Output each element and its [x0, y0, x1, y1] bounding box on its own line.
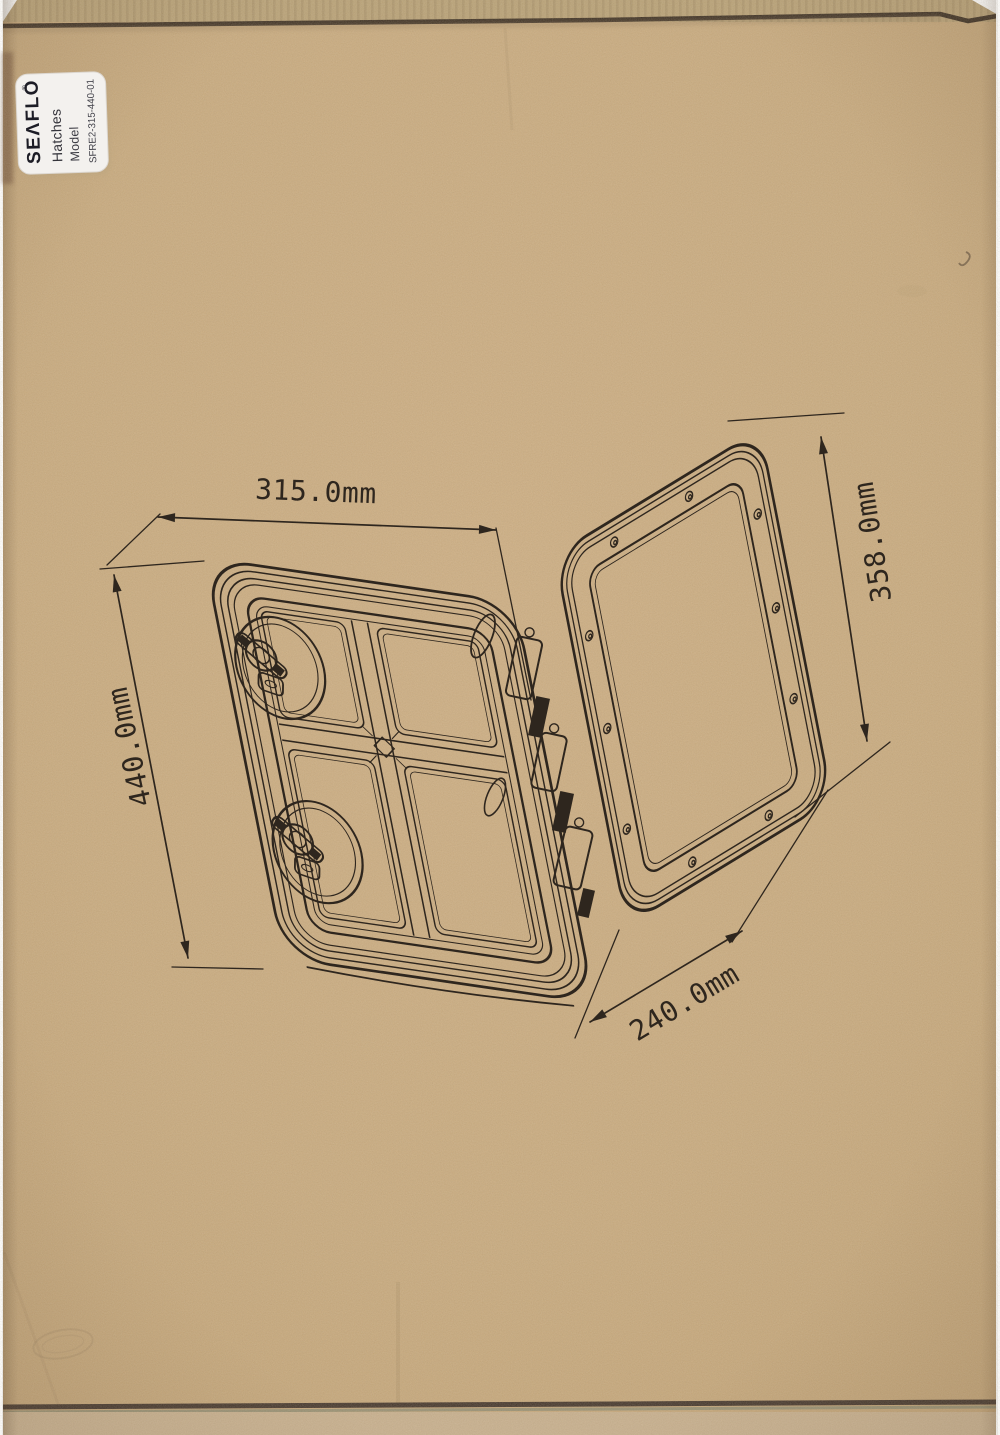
box-label: SEΛFLO ® Hatches Model SFRE2-315-440-01: [15, 71, 111, 177]
model-field-label: Model: [67, 126, 82, 162]
dimension-frame-width-label: 315.0mm: [255, 473, 378, 511]
photo-of-product-box: SEΛFLO ® Hatches Model SFRE2-315-440-01: [0, 0, 1000, 1435]
brand-logo: SEΛFLO: [21, 79, 45, 165]
product-box: [0, 0, 1000, 1435]
product-name: Hatches: [48, 108, 66, 162]
